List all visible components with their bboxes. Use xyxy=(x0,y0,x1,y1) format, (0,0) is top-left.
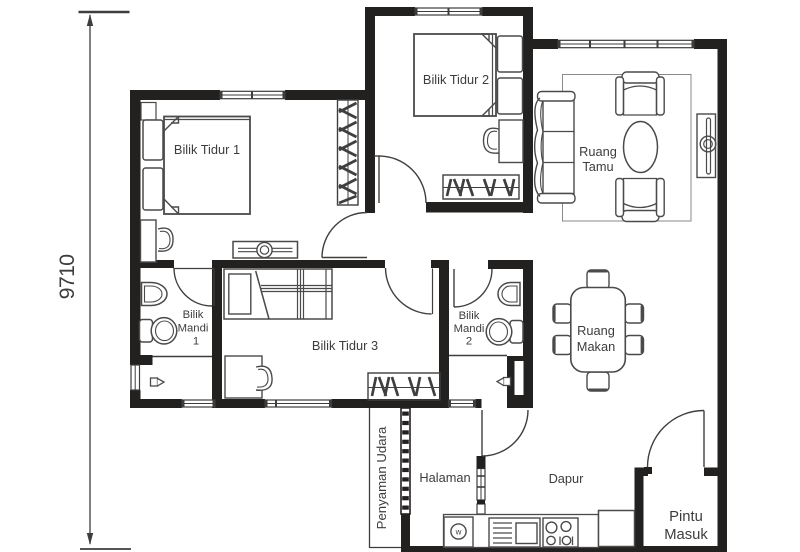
svg-text:Bilik Tidur 3: Bilik Tidur 3 xyxy=(312,338,378,353)
svg-text:9710: 9710 xyxy=(55,254,79,299)
svg-text:Bilik: Bilik xyxy=(183,309,204,321)
svg-text:Bilik: Bilik xyxy=(459,310,480,322)
svg-text:Ruang: Ruang xyxy=(577,323,615,338)
svg-text:2: 2 xyxy=(466,336,472,348)
svg-text:1: 1 xyxy=(193,336,199,348)
svg-text:Bilik Tidur 2: Bilik Tidur 2 xyxy=(423,72,489,87)
svg-text:Makan: Makan xyxy=(577,339,615,354)
svg-text:Pintu: Pintu xyxy=(669,509,703,525)
svg-text:Halaman: Halaman xyxy=(419,470,470,485)
svg-text:Mandi: Mandi xyxy=(178,323,209,335)
svg-text:Dapur: Dapur xyxy=(549,471,585,486)
svg-text:Bilik Tidur 1: Bilik Tidur 1 xyxy=(174,142,240,157)
svg-text:Tamu: Tamu xyxy=(582,159,613,174)
svg-text:Penyaman Udara: Penyaman Udara xyxy=(374,426,389,529)
svg-text:Masuk: Masuk xyxy=(664,527,708,543)
svg-text:Mandi: Mandi xyxy=(454,323,485,335)
svg-text:w: w xyxy=(455,528,462,537)
svg-text:Ruang: Ruang xyxy=(579,144,617,159)
